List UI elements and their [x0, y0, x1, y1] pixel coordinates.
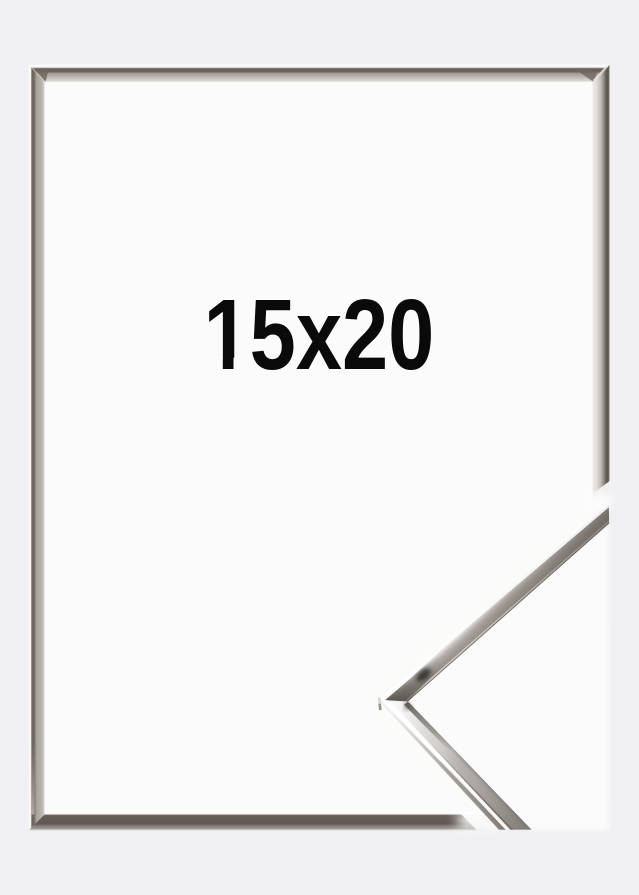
- svg-text:15x20: 15x20: [204, 280, 435, 391]
